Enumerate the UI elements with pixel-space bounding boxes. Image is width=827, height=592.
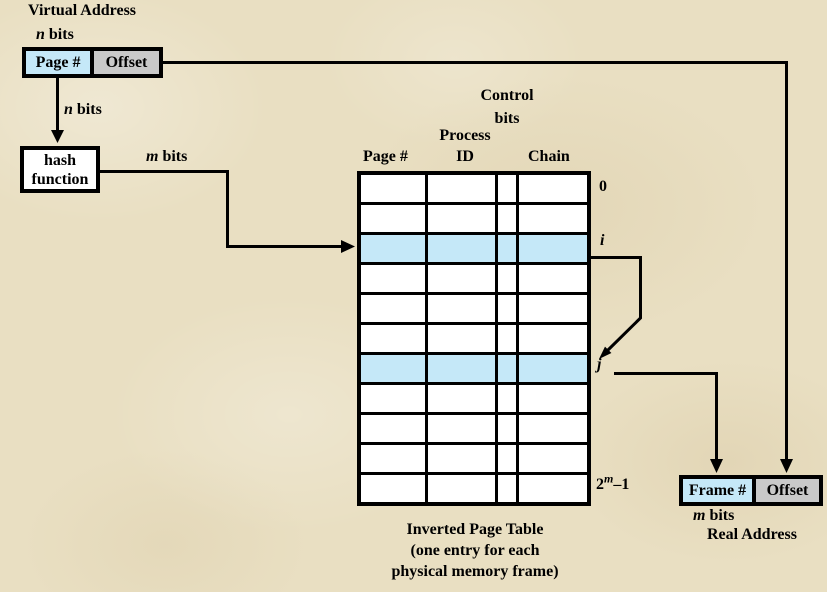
- real-address-title: Real Address: [707, 525, 797, 545]
- ipt-body: [359, 173, 589, 504]
- arrowhead-into-row-i: [341, 240, 355, 253]
- chain-header: Chain: [528, 147, 570, 167]
- table-cell: [427, 414, 497, 444]
- table-cell: [359, 173, 427, 204]
- virtual-offset-field: Offset: [90, 51, 159, 74]
- table-cell: [359, 204, 427, 234]
- table-row: [359, 173, 589, 204]
- table-cell: [497, 294, 518, 324]
- table-cell: [427, 444, 497, 474]
- virtual-address-box: Page # Offset: [22, 47, 163, 78]
- table-cell: [427, 294, 497, 324]
- row-label-last: 2m–1: [596, 475, 629, 495]
- table-cell: [359, 354, 427, 384]
- connector-hash-to-row-i: [100, 172, 341, 247]
- arrowhead-into-real-offset: [780, 459, 793, 473]
- table-cell: [497, 414, 518, 444]
- table-cell: [518, 444, 590, 474]
- table-cell: [497, 444, 518, 474]
- m-bits-label: m bits: [146, 147, 187, 167]
- table-cell: [497, 264, 518, 294]
- table-cell: [497, 474, 518, 505]
- table-row: [359, 414, 589, 444]
- table-cell: [359, 384, 427, 414]
- table-cell: [497, 384, 518, 414]
- table-cell: [518, 414, 590, 444]
- table-cell: [359, 294, 427, 324]
- table-cell: [518, 234, 590, 264]
- table-cell: [518, 173, 590, 204]
- table-cell: [518, 474, 590, 505]
- table-cell: [427, 264, 497, 294]
- table-row: [359, 234, 589, 264]
- table-cell: [518, 204, 590, 234]
- table-row: [359, 444, 589, 474]
- table-row: [359, 264, 589, 294]
- table-row: [359, 474, 589, 505]
- virtual-address-title: Virtual Address: [28, 1, 136, 21]
- real-offset-field: Offset: [752, 479, 819, 502]
- table-cell: [497, 173, 518, 204]
- table-row: [359, 324, 589, 354]
- table-cell: [359, 264, 427, 294]
- table-cell: [427, 474, 497, 505]
- arrowhead-into-hash: [51, 130, 64, 143]
- table-cell: [518, 294, 590, 324]
- n-bits-label-mid: n bits: [64, 100, 102, 120]
- table-cell: [359, 474, 427, 505]
- table-row: [359, 384, 589, 414]
- process-id-header: Process ID: [439, 125, 490, 167]
- table-cell: [518, 324, 590, 354]
- table-cell: [518, 384, 590, 414]
- table-cell: [359, 444, 427, 474]
- row-label-i: i: [600, 231, 604, 251]
- inverted-page-table-diagram: Virtual Address n bits Page # Offset n b…: [0, 0, 827, 592]
- frame-number-field: Frame #: [683, 479, 752, 502]
- table-row: [359, 204, 589, 234]
- real-address-box: Frame # Offset: [679, 475, 823, 506]
- hash-function-box: hash function: [20, 146, 100, 193]
- table-row: [359, 354, 589, 384]
- connector-j-to-frame: [614, 374, 717, 460]
- table-cell: [497, 234, 518, 264]
- table-cell: [497, 324, 518, 354]
- table-cell: [497, 354, 518, 384]
- control-bits-header: Control bits: [480, 84, 533, 130]
- row-label-j: j: [597, 355, 601, 375]
- table-cell: [359, 234, 427, 264]
- inverted-page-table: [357, 171, 591, 506]
- table-cell: [427, 234, 497, 264]
- table-cell: [359, 414, 427, 444]
- table-cell: [497, 204, 518, 234]
- m-bits-label-real: m bits: [693, 506, 734, 526]
- n-bits-label-top: n bits: [36, 25, 74, 45]
- table-cell: [427, 354, 497, 384]
- table-cell: [427, 204, 497, 234]
- table-cell: [518, 264, 590, 294]
- table-cell: [427, 384, 497, 414]
- table-cell: [359, 324, 427, 354]
- table-cell: [518, 354, 590, 384]
- row-label-0: 0: [599, 177, 607, 197]
- table-cell: [427, 324, 497, 354]
- table-caption: Inverted Page Table (one entry for each …: [391, 519, 558, 582]
- arrowhead-into-frame: [710, 459, 723, 473]
- table-row: [359, 294, 589, 324]
- page-number-header: Page #: [363, 147, 408, 167]
- virtual-page-number-field: Page #: [26, 51, 90, 74]
- table-cell: [427, 173, 497, 204]
